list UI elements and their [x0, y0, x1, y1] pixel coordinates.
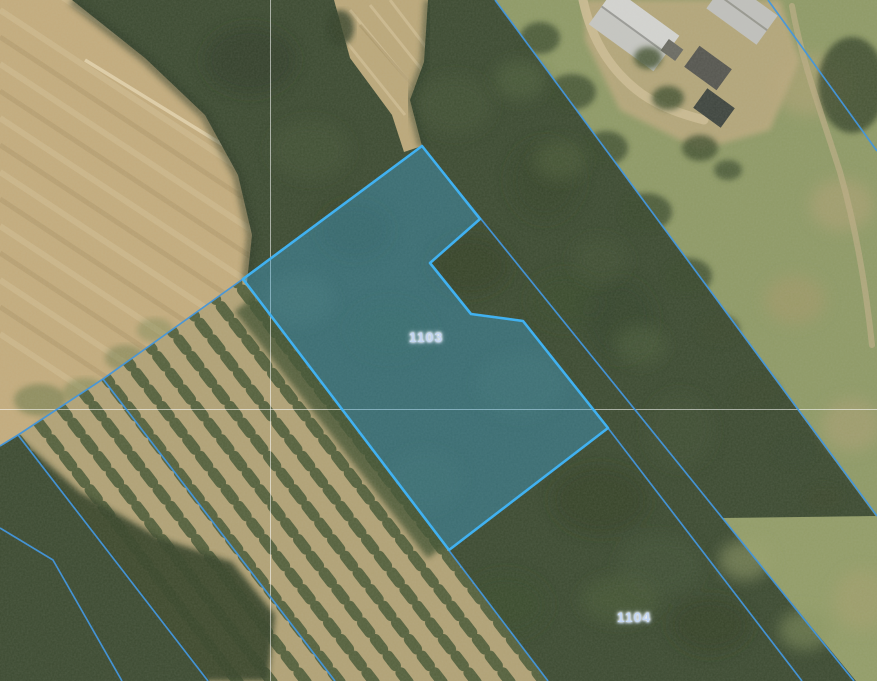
- aerial-imagery: [0, 0, 877, 681]
- map-viewport[interactable]: 1103 1104: [0, 0, 877, 681]
